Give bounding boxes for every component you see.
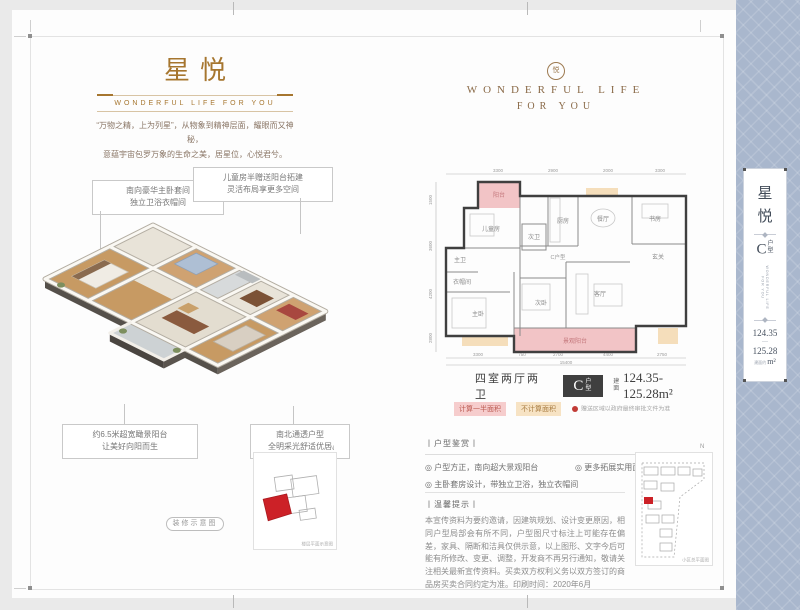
crop-line — [700, 20, 701, 32]
callout-line: 灵活布局享更多空间 — [200, 184, 326, 196]
card-corner — [784, 168, 787, 171]
crop-line — [14, 36, 26, 37]
plant — [57, 282, 65, 287]
highlighted-unit — [263, 494, 292, 521]
crop-line — [30, 20, 31, 32]
title-rule — [97, 94, 293, 96]
card-corner — [743, 379, 746, 382]
area-prefix: 建面 — [613, 379, 620, 392]
page-title: 星悦 — [95, 50, 295, 87]
area-range: 建面 124.35-125.28m² — [613, 370, 710, 402]
card-unit-type: C户型 — [744, 241, 786, 258]
keyplan-caption: 楼层平面示意图 — [301, 540, 333, 547]
legend-half-area: 计算一半面积 — [454, 402, 506, 416]
2d-floorplan: 阳台 儿童房 主卫 衣帽间 主卧 次卫 厨房 餐厅 书房 玄关 次卧 客厅 景观… — [418, 166, 708, 373]
crop-mark — [28, 34, 32, 38]
svg-text:主卫: 主卫 — [454, 256, 466, 264]
callout-line: 让美好向阳而生 — [69, 441, 191, 453]
legend-note: 赠送区域以政府最终审批文件为准 — [581, 405, 670, 414]
card-ornament — [754, 320, 776, 321]
svg-text:2800: 2800 — [428, 332, 433, 343]
card-area-max: 125.28 — [744, 345, 786, 357]
brand-seal-icon: 悦 — [547, 62, 565, 80]
svg-text:3300: 3300 — [493, 168, 504, 173]
svg-text:2750: 2750 — [657, 352, 668, 357]
brand-line2: FOR YOU — [466, 101, 646, 112]
card-corner — [784, 379, 787, 382]
brand-line1: WONDERFUL LIFE — [466, 84, 646, 96]
svg-text:750: 750 — [518, 352, 526, 357]
card-corner — [743, 168, 746, 171]
tagline: “万物之精，上为列星”，从物象到精神层面，耀眼而又神秘， 意蕴宇宙包罗万象的生命… — [95, 119, 295, 162]
keyplan-drawing — [254, 453, 334, 547]
svg-text:15400: 15400 — [560, 360, 573, 365]
rule-dash — [97, 94, 113, 96]
callout-line: 儿童房半赠送阳台拓建 — [200, 172, 326, 184]
svg-text:3300: 3300 — [473, 352, 484, 357]
svg-text:3600: 3600 — [428, 240, 433, 251]
crop-line — [14, 588, 26, 589]
bay-window — [658, 328, 678, 344]
furniture — [452, 198, 668, 328]
card-areas: 124.35 — 125.28 建面约m² — [744, 327, 786, 368]
card-type-suffix: 户型 — [768, 241, 774, 254]
tagline-line2: 意蕴宇宙包罗万象的生命之美，居星位，心悦君兮。 — [95, 148, 295, 162]
card-area-min: 124.35 — [744, 327, 786, 339]
svg-text:衣帽间: 衣帽间 — [453, 278, 471, 286]
crop-tick — [233, 595, 234, 608]
area-value: 124.35-125.28m² — [623, 370, 710, 402]
legend-dot-icon — [572, 406, 578, 412]
card-area-unit: 建面约m² — [744, 357, 786, 368]
siteplan-drawing — [636, 453, 710, 563]
rule-line — [113, 95, 277, 96]
siteplan-box: 小区总平面图 — [635, 452, 713, 566]
card-title: 星 悦 — [744, 183, 786, 228]
spec-row: 四室两厅两卫 C 户型 建面 124.35-125.28m² — [425, 374, 710, 398]
north-indicator: N — [700, 444, 704, 450]
card-area-prefix: 建面约 — [754, 360, 766, 365]
callout-children-room: 儿童房半赠送阳台拓建 灵活布局享更多空间 — [193, 167, 333, 202]
keyplan-box: 楼层平面示意图 — [253, 452, 337, 550]
card-type-letter: C — [756, 242, 766, 258]
card-title-char: 星 — [744, 183, 786, 206]
svg-text:2000: 2000 — [603, 168, 614, 173]
plant — [173, 348, 181, 353]
crop-tick — [527, 595, 528, 608]
card-ornament — [754, 234, 776, 235]
title-block: 星悦 WONDERFUL LIFE FOR YOU “万物之精，上为列星”，从物… — [95, 50, 295, 162]
appreciation-title: 丨户型鉴赏丨 — [425, 438, 707, 449]
plant — [119, 328, 127, 333]
notice-body: 本宣传资料为要约邀请，因建筑规划、设计变更原因，相同户型局部会有所不同，户型图尺… — [425, 515, 625, 592]
3d-floorplan-render — [35, 203, 345, 433]
svg-text:客厅: 客厅 — [594, 290, 606, 298]
crop-tick — [233, 2, 234, 15]
card-vertical-caption: WONDERFUL LIFE FOR YOU — [761, 264, 770, 311]
legend-no-area: 不计算面积 — [516, 402, 561, 416]
unit-type-badge: C 户型 — [563, 375, 604, 397]
svg-text:2700: 2700 — [553, 352, 564, 357]
unit-type-letter: C — [573, 378, 583, 395]
crop-mark — [720, 34, 724, 38]
rule-line — [97, 111, 293, 112]
bay-window — [462, 336, 508, 346]
plan-legend: 计算一半面积 不计算面积 赠送区域以政府最终审批文件为准 — [425, 402, 710, 416]
page-subtitle: WONDERFUL LIFE FOR YOU — [95, 100, 295, 107]
svg-text:厨房: 厨房 — [557, 217, 569, 225]
render-caption-pill: 装修示意图 — [166, 517, 224, 531]
card-unit-label: m² — [767, 357, 776, 366]
appreciation-bullet-1: ◎ 户型方正，南向超大景观阳台 — [425, 462, 575, 474]
svg-text:3300: 3300 — [655, 168, 666, 173]
unit-type-suffix: 户型 — [585, 379, 592, 393]
siteplan-caption: 小区总平面图 — [682, 556, 709, 563]
card-title-char: 悦 — [744, 206, 786, 229]
svg-text:玄关: 玄关 — [652, 253, 664, 261]
crop-mark — [28, 586, 32, 590]
svg-text:餐厅: 餐厅 — [597, 215, 609, 223]
svg-text:阳台: 阳台 — [493, 191, 505, 199]
svg-text:儿童房: 儿童房 — [482, 225, 500, 233]
svg-text:4400: 4400 — [603, 352, 614, 357]
crop-mark — [720, 586, 724, 590]
crop-tick — [527, 2, 528, 15]
layout-label: 四室两厅两卫 — [475, 370, 551, 402]
notice-title: 丨温馨提示丨 — [425, 499, 625, 510]
svg-text:2900: 2900 — [548, 168, 559, 173]
svg-text:主卧: 主卧 — [472, 310, 484, 318]
svg-text:1500: 1500 — [428, 194, 433, 205]
svg-text:次卫: 次卫 — [528, 233, 540, 241]
highlighted-building — [644, 497, 653, 504]
notice-block: 丨温馨提示丨 本宣传资料为要约邀请，因建筑规划、设计变更原因，相同户型局部会有所… — [425, 492, 625, 592]
svg-text:4200: 4200 — [428, 288, 433, 299]
svg-text:景观阳台: 景观阳台 — [563, 337, 587, 345]
svg-text:书房: 书房 — [649, 215, 661, 223]
svg-text:C户型: C户型 — [551, 253, 566, 261]
rule-dash — [277, 94, 293, 96]
side-index-card: 星 悦 C户型 WONDERFUL LIFE FOR YOU 124.35 — … — [743, 168, 787, 382]
tagline-line1: “万物之精，上为列星”，从物象到精神层面，耀眼而又神秘， — [95, 119, 295, 148]
svg-text:次卧: 次卧 — [535, 299, 547, 307]
brand-block: WONDERFUL LIFE FOR YOU — [466, 84, 646, 112]
